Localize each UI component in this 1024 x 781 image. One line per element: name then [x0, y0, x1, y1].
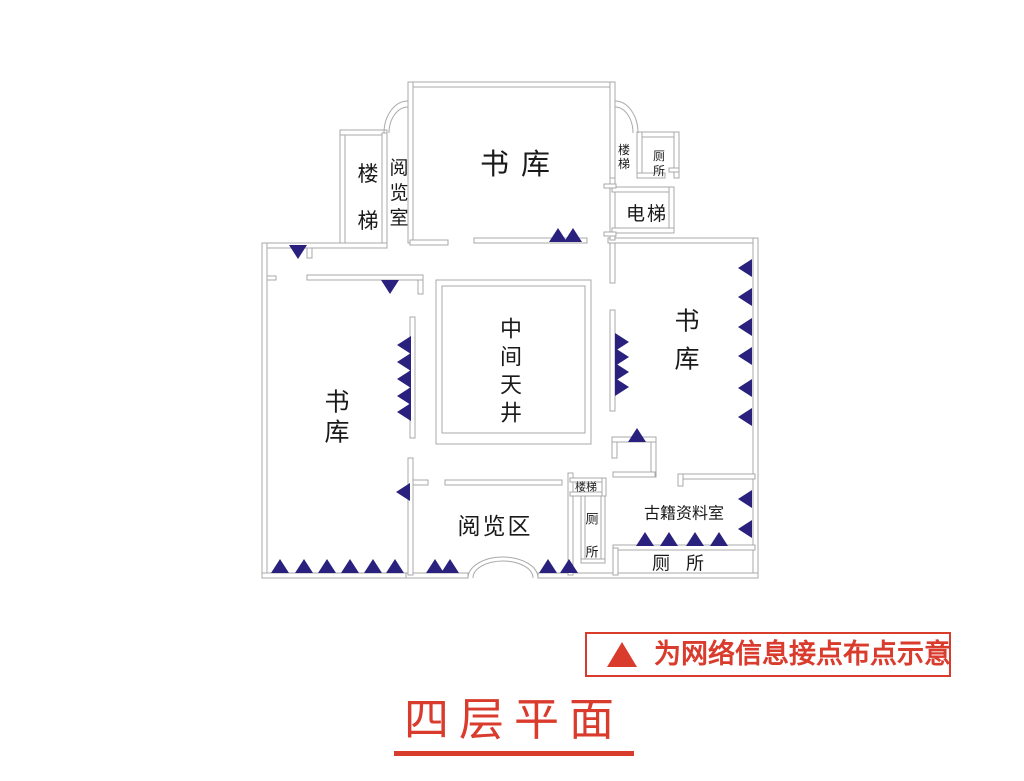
- wall: [604, 184, 616, 188]
- room-label-toilet-bottom-right: 厕所: [652, 554, 720, 575]
- network-point-triangle: [660, 532, 678, 546]
- wall: [613, 548, 618, 575]
- room-label-stairs-top-right: 梯: [618, 157, 630, 171]
- wall: [307, 248, 312, 258]
- network-point-triangle: [397, 336, 411, 354]
- arched-opening: [473, 561, 533, 578]
- room-label-reading-area: 阅览区: [458, 514, 533, 540]
- network-point-triangle: [397, 353, 411, 371]
- network-point-triangle: [615, 363, 629, 381]
- network-point-triangle: [628, 428, 646, 442]
- wall: [613, 545, 755, 550]
- network-point-triangle: [289, 245, 307, 259]
- wall: [340, 130, 345, 245]
- room-label-reading-room-top: 阅: [389, 157, 408, 179]
- wall: [445, 480, 562, 485]
- wall: [408, 82, 615, 87]
- wall: [340, 130, 387, 135]
- room-label-stairs-top-right: 楼: [618, 142, 630, 157]
- wall: [410, 240, 448, 245]
- wall: [678, 474, 755, 479]
- wall: [678, 474, 683, 486]
- wall: [753, 238, 758, 578]
- page-title: 四层平面: [394, 697, 634, 756]
- network-point-triangle: [364, 559, 382, 573]
- wall: [637, 132, 679, 137]
- wall: [408, 82, 413, 243]
- wall: [307, 275, 423, 280]
- room-label-stairs-bottom: 楼梯: [575, 480, 597, 494]
- wall: [637, 132, 642, 178]
- legend-text: 为网络信息接点布点示意: [654, 641, 951, 668]
- room-label-toilet-bottom-middle: 厕: [585, 513, 598, 528]
- legend-box: 为网络信息接点布点示意: [585, 632, 951, 677]
- room-label-central-courtyard: 天: [500, 374, 522, 399]
- wall: [262, 243, 267, 578]
- room-label-central-courtyard: 中: [500, 318, 522, 343]
- network-point-triangle: [564, 228, 582, 242]
- network-point-triangle: [738, 259, 752, 277]
- floor-plan-page: 书库楼梯阅览室楼梯厕所电梯中间天井书库书库阅览区楼梯厕所古籍资料室厕所 为网络信…: [0, 0, 1024, 781]
- wall: [612, 228, 674, 233]
- network-point-triangle: [396, 483, 410, 501]
- room-label-toilet-top-right: 厕: [653, 149, 665, 163]
- network-point-triangle: [738, 288, 752, 306]
- wall: [262, 573, 412, 578]
- network-point-triangle: [615, 348, 629, 366]
- network-point-triangle: [318, 559, 336, 573]
- wall: [604, 232, 616, 236]
- wall: [612, 187, 674, 192]
- network-point-triangle: [738, 520, 752, 538]
- network-point-triangle: [636, 532, 654, 546]
- wall: [267, 276, 276, 280]
- room-label-toilet-bottom-middle: 所: [585, 546, 598, 561]
- wall: [608, 238, 758, 243]
- room-label-book-stack-left: 库: [324, 418, 349, 447]
- arched-opening: [384, 101, 408, 133]
- network-point-triangle: [615, 378, 629, 396]
- network-point-triangle: [710, 532, 728, 546]
- room-label-stairs-top-left: 楼: [358, 162, 379, 186]
- network-point-triangle: [386, 559, 404, 573]
- network-point-triangle: [738, 347, 752, 365]
- network-point-triangle: [738, 408, 752, 426]
- room-label-archives-room: 古籍资料室: [644, 504, 724, 523]
- network-point-triangle: [295, 559, 313, 573]
- network-point-triangle: [397, 403, 411, 421]
- network-point-triangle: [560, 559, 578, 573]
- network-point-triangle: [271, 559, 289, 573]
- wall: [382, 133, 387, 245]
- network-point-triangle: [381, 280, 399, 294]
- wall: [413, 480, 428, 485]
- arched-opening: [615, 101, 638, 133]
- network-point-triangle: [397, 370, 411, 388]
- wall: [602, 478, 606, 496]
- wall: [669, 168, 679, 172]
- network-point-triangle: [397, 387, 411, 405]
- network-point-triangle: [738, 379, 752, 397]
- wall: [262, 243, 387, 248]
- network-point-triangle: [686, 532, 704, 546]
- wall: [408, 458, 413, 575]
- wall: [601, 496, 605, 562]
- room-label-central-courtyard: 井: [500, 402, 522, 427]
- network-point-triangle: [426, 559, 444, 573]
- wall: [406, 573, 468, 578]
- room-label-toilet-top-right: 所: [653, 164, 665, 178]
- network-point-triangle: [549, 228, 567, 242]
- room-label-book-stack-right: 书: [674, 307, 699, 336]
- wall: [669, 187, 674, 233]
- wall: [613, 472, 655, 477]
- wall: [418, 280, 423, 294]
- arched-opening: [615, 107, 633, 133]
- network-point-triangle: [738, 490, 752, 508]
- room-label-stairs-top-left: 梯: [358, 209, 379, 233]
- room-label-elevator: 电梯: [626, 203, 668, 225]
- room-label-reading-room-top: 览: [389, 182, 408, 204]
- room-label-central-courtyard: 间: [500, 346, 522, 371]
- wall: [610, 310, 615, 411]
- arched-opening: [468, 557, 538, 578]
- room-label-book-stack-right: 库: [674, 345, 699, 374]
- wall: [581, 496, 585, 562]
- wall: [612, 442, 617, 458]
- arched-opening: [389, 107, 408, 133]
- room-label-book-stack-top: 书库: [480, 147, 562, 181]
- network-point-triangle: [539, 559, 557, 573]
- network-point-triangle-icon: [607, 642, 637, 667]
- network-point-triangle: [738, 318, 752, 336]
- wall: [610, 243, 615, 283]
- network-point-triangle: [441, 559, 459, 573]
- room-label-book-stack-left: 书: [324, 388, 349, 417]
- room-label-reading-room-top: 室: [389, 207, 408, 229]
- network-point-triangle: [341, 559, 359, 573]
- network-point-triangle: [615, 333, 629, 351]
